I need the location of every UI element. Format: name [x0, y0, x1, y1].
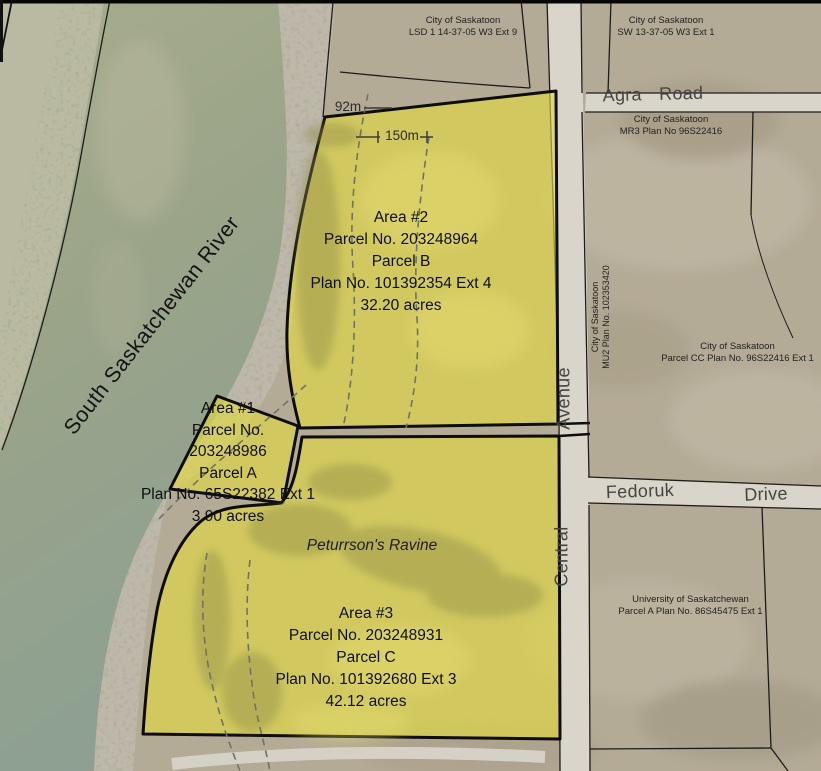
- parcel-label-area2: Area #2 Parcel No. 203248964 Parcel B Pl…: [281, 207, 521, 317]
- parcel-map: City of Saskatoon LSD 1 14-37-05 W3 Ext …: [0, 0, 821, 771]
- jurisdiction-label-lsd1: City of Saskatoon LSD 1 14-37-05 W3 Ext …: [353, 15, 573, 38]
- area3-parcel-no: Parcel No. 203248931: [246, 625, 486, 647]
- jurisdiction-univ-line2: Parcel A Plan No. 86S45475 Ext 1: [578, 606, 803, 618]
- jurisdiction-mu2-line1: City of Saskatoon: [590, 257, 601, 377]
- area1-parcel-no: 203248986: [128, 441, 328, 463]
- road-label-central: Central: [552, 507, 573, 607]
- jurisdiction-lsd1-line1: City of Saskatoon: [353, 15, 573, 27]
- area3-plan: Plan No. 101392680 Ext 3: [246, 669, 486, 691]
- area1-parcel-letter: Parcel A: [128, 463, 328, 485]
- jurisdiction-label-mu2: City of Saskatoon MU2 Plan No. 102353420: [590, 257, 612, 377]
- map-top-border: [0, 0, 821, 4]
- jurisdiction-mr3-line2: MR3 Plan No 96S22416: [582, 126, 760, 138]
- road-label-drive: Drive: [729, 483, 804, 507]
- jurisdiction-cc-line2: Parcel CC Plan No. 96S22416 Ext 1: [635, 353, 821, 365]
- area3-title: Area #3: [246, 603, 486, 625]
- jurisdiction-lsd1-line2: LSD 1 14-37-05 W3 Ext 9: [353, 27, 573, 39]
- area1-plan: Plan No. 65S22382 Ext 1: [128, 484, 328, 506]
- jurisdiction-label-university: University of Saskatchewan Parcel A Plan…: [578, 594, 803, 617]
- area3-parcel-letter: Parcel C: [246, 647, 486, 669]
- road-label-agra: Agra Road: [593, 82, 714, 106]
- jurisdiction-sw13-line1: City of Saskatoon: [566, 15, 766, 27]
- jurisdiction-mu2-line2: MU2 Plan No. 102353420: [601, 257, 612, 377]
- parcel-label-area3: Area #3 Parcel No. 203248931 Parcel C Pl…: [246, 603, 486, 713]
- jurisdiction-mr3-line1: City of Saskatoon: [582, 114, 760, 126]
- parcel-label-area1: Area #1 Parcel No. 203248986 Parcel A Pl…: [128, 398, 328, 527]
- area2-title: Area #2: [281, 207, 521, 229]
- area3-acres: 42.12 acres: [246, 691, 486, 713]
- area1-title: Area #1: [128, 398, 328, 420]
- area1-parcel-no-label: Parcel No.: [128, 420, 328, 442]
- jurisdiction-univ-line1: University of Saskatchewan: [578, 594, 803, 606]
- area2-parcel-no: Parcel No. 203248964: [281, 229, 521, 251]
- jurisdiction-cc-line1: City of Saskatoon: [635, 341, 821, 353]
- dimension-label-150m: 150m: [381, 128, 423, 143]
- dimension-label-92m: 92m: [329, 99, 367, 114]
- road-label-avenue: Avenue: [554, 349, 575, 449]
- area1-acres: 3.90 acres: [128, 506, 328, 528]
- area2-parcel-letter: Parcel B: [281, 251, 521, 273]
- area2-acres: 32.20 acres: [281, 295, 521, 317]
- jurisdiction-label-parcel-cc: City of Saskatoon Parcel CC Plan No. 96S…: [635, 341, 821, 364]
- jurisdiction-sw13-line2: SW 13-37-05 W3 Ext 1: [566, 27, 766, 39]
- ravine-name-label: Peturrson's Ravine: [272, 537, 472, 555]
- jurisdiction-label-mr3: City of Saskatoon MR3 Plan No 96S22416: [582, 114, 760, 137]
- jurisdiction-label-sw13: City of Saskatoon SW 13-37-05 W3 Ext 1: [566, 15, 766, 38]
- area2-plan: Plan No. 101392354 Ext 4: [281, 273, 521, 295]
- road-label-fedoruk: Fedoruk: [594, 479, 687, 503]
